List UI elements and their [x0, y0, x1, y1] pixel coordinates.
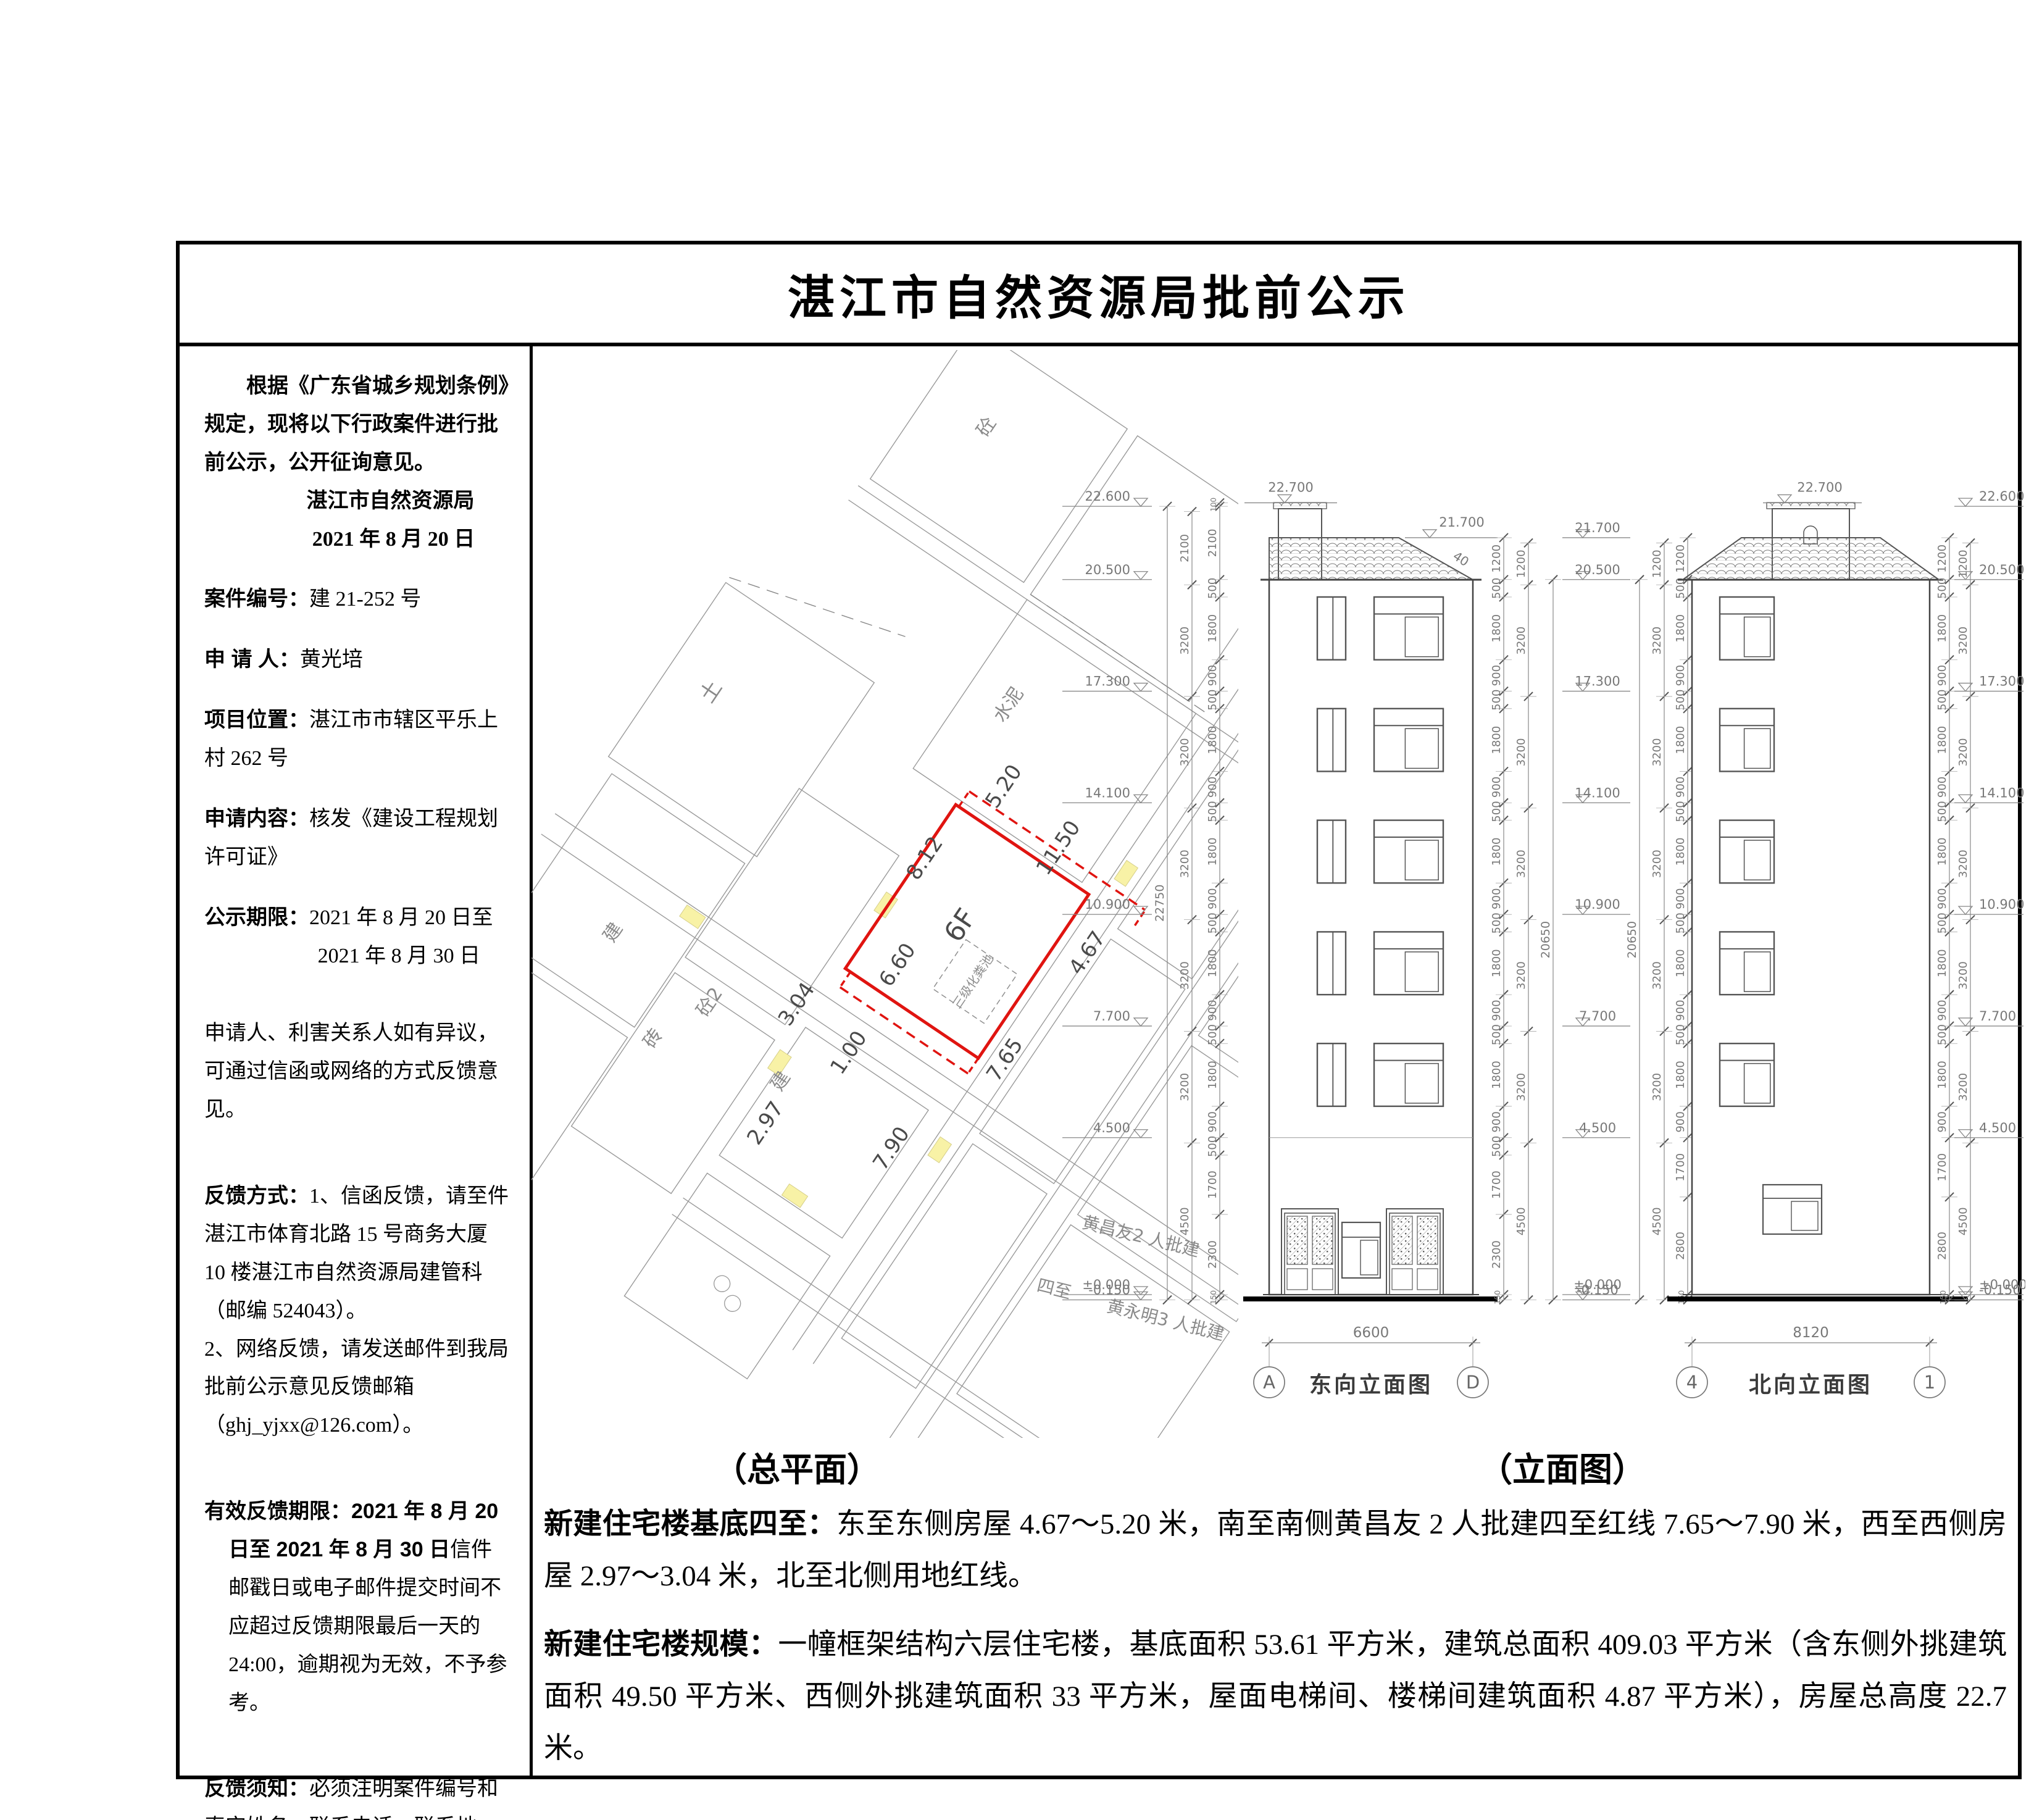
- svg-text:1800: 1800: [1490, 838, 1503, 866]
- svg-text:3200: 3200: [1515, 627, 1528, 655]
- svg-text:建: 建: [599, 919, 627, 946]
- svg-text:1800: 1800: [1206, 614, 1219, 643]
- svg-text:900: 900: [1936, 1000, 1949, 1021]
- svg-text:14.100: 14.100: [1085, 785, 1130, 800]
- svg-text:500: 500: [1674, 1024, 1687, 1045]
- svg-text:1200: 1200: [1674, 545, 1687, 573]
- svg-text:3.04: 3.04: [773, 978, 820, 1030]
- svg-text:17.300: 17.300: [1575, 674, 1620, 689]
- svg-text:20.500: 20.500: [1979, 562, 2024, 577]
- svg-text:17.300: 17.300: [1979, 674, 2024, 689]
- svg-text:1200: 1200: [1651, 549, 1664, 578]
- svg-text:21.700: 21.700: [1575, 520, 1620, 535]
- svg-text:4500: 4500: [1178, 1207, 1191, 1235]
- svg-text:500: 500: [1490, 912, 1503, 933]
- svg-text:2300: 2300: [1490, 1240, 1503, 1269]
- svg-text:500: 500: [1206, 1024, 1219, 1045]
- svg-text:500: 500: [1206, 912, 1219, 933]
- svg-text:砖: 砖: [639, 1025, 667, 1052]
- svg-text:北向立面图: 北向立面图: [1749, 1372, 1872, 1398]
- svg-text:3200: 3200: [1957, 961, 1970, 990]
- svg-text:900: 900: [1936, 888, 1949, 909]
- footer-p2-label: 新建住宅楼规模：: [544, 1627, 778, 1660]
- svg-text:3200: 3200: [1651, 627, 1664, 655]
- svg-text:500: 500: [1936, 912, 1949, 933]
- svg-text:900: 900: [1936, 1111, 1949, 1132]
- svg-text:1200: 1200: [1490, 545, 1503, 573]
- svg-text:东向立面图: 东向立面图: [1309, 1372, 1433, 1398]
- page-title: 湛江市自然资源局批前公示: [788, 260, 1410, 328]
- footer-notes: 新建住宅楼基底四至：东至东侧房屋 4.67～5.20 米，南至南侧黄昌友 2 人…: [544, 1498, 2007, 1790]
- svg-text:1800: 1800: [1206, 726, 1219, 754]
- svg-text:1700: 1700: [1490, 1171, 1503, 1199]
- svg-text:3200: 3200: [1957, 1073, 1970, 1101]
- svg-text:3200: 3200: [1651, 961, 1664, 990]
- svg-text:900: 900: [1490, 888, 1503, 909]
- svg-text:20.500: 20.500: [1575, 562, 1620, 577]
- svg-text:-0.150: -0.150: [1088, 1282, 1130, 1297]
- svg-text:500: 500: [1206, 801, 1219, 822]
- svg-text:40: 40: [1451, 548, 1472, 569]
- svg-text:3200: 3200: [1651, 1073, 1664, 1101]
- svg-text:500: 500: [1674, 912, 1687, 933]
- svg-text:1800: 1800: [1206, 949, 1219, 977]
- svg-text:1800: 1800: [1490, 1061, 1503, 1089]
- svg-text:20650: 20650: [1539, 921, 1552, 958]
- svg-text:1800: 1800: [1490, 614, 1503, 643]
- svg-text:4500: 4500: [1515, 1207, 1528, 1235]
- svg-text:20650: 20650: [1625, 921, 1639, 958]
- svg-text:900: 900: [1206, 777, 1219, 798]
- east-elevation: 2275045003200320032003200320021001502300…: [1062, 480, 1498, 1398]
- svg-text:21.700: 21.700: [1439, 515, 1484, 530]
- svg-text:4.500: 4.500: [1979, 1121, 2016, 1135]
- public-notice-sheet: 湛江市自然资源局批前公示 根据《广东省城乡规划条例》规定，现将以下行政案件进行批…: [0, 0, 2042, 1820]
- svg-text:10.900: 10.900: [1085, 897, 1130, 912]
- svg-text:3200: 3200: [1178, 738, 1191, 767]
- svg-text:22.600: 22.600: [1979, 489, 2024, 504]
- svg-text:2100: 2100: [1178, 534, 1191, 562]
- svg-text:1800: 1800: [1936, 838, 1949, 866]
- svg-text:1800: 1800: [1490, 949, 1503, 977]
- svg-text:900: 900: [1674, 1000, 1687, 1021]
- svg-text:14.100: 14.100: [1979, 785, 2024, 800]
- svg-text:14.100: 14.100: [1575, 785, 1620, 800]
- footer-paragraph-scale: 新建住宅楼规模：一幢框架结构六层住宅楼，基底面积 53.61 平方米，建筑总面积…: [544, 1618, 2007, 1774]
- svg-text:-0.150: -0.150: [1979, 1282, 2021, 1297]
- elevation-drawings: 2275045003200320032003200320021001502300…: [1004, 350, 2025, 1438]
- svg-text:1800: 1800: [1936, 949, 1949, 977]
- notice-frame: 湛江市自然资源局批前公示 根据《广东省城乡规划条例》规定，现将以下行政案件进行批…: [176, 241, 2022, 1779]
- svg-text:3200: 3200: [1515, 961, 1528, 990]
- svg-text:10.900: 10.900: [1979, 897, 2024, 912]
- footer-p1-label: 新建住宅楼基底四至：: [544, 1507, 836, 1540]
- svg-text:D: D: [1466, 1372, 1480, 1393]
- svg-text:500: 500: [1490, 578, 1503, 599]
- svg-text:900: 900: [1490, 777, 1503, 798]
- svg-text:6F: 6F: [938, 903, 983, 948]
- svg-text:4: 4: [1686, 1372, 1698, 1393]
- svg-text:3200: 3200: [1178, 627, 1191, 655]
- middle-dimensions: 1502300170050090018005009001800500900180…: [1490, 520, 1696, 1304]
- svg-text:3200: 3200: [1178, 961, 1191, 990]
- svg-text:500: 500: [1490, 1024, 1503, 1045]
- svg-text:1800: 1800: [1936, 726, 1949, 754]
- svg-text:土: 土: [695, 676, 727, 708]
- svg-text:500: 500: [1490, 1136, 1503, 1157]
- svg-text:10.900: 10.900: [1575, 897, 1620, 912]
- svg-text:500: 500: [1936, 1024, 1949, 1045]
- svg-text:7.700: 7.700: [1579, 1009, 1616, 1024]
- feedback-notes: 反馈须知：必须注明案件编号和真实姓名、联系电话、联系地址、邮政编码，如反馈信息不…: [204, 1770, 509, 1820]
- svg-text:建: 建: [767, 1067, 795, 1095]
- svg-text:4.500: 4.500: [1093, 1121, 1130, 1135]
- svg-text:3200: 3200: [1957, 849, 1970, 878]
- svg-text:A: A: [1263, 1372, 1275, 1393]
- footer-paragraph-boundaries: 新建住宅楼基底四至：东至东侧房屋 4.67～5.20 米，南至南侧黄昌友 2 人…: [544, 1498, 2007, 1602]
- svg-text:6.60: 6.60: [874, 938, 920, 991]
- svg-text:500: 500: [1674, 801, 1687, 822]
- svg-text:-0.150: -0.150: [1577, 1282, 1619, 1297]
- svg-text:500: 500: [1490, 690, 1503, 711]
- svg-text:900: 900: [1674, 665, 1687, 686]
- svg-text:900: 900: [1206, 665, 1219, 686]
- svg-text:8120: 8120: [1793, 1325, 1829, 1341]
- svg-text:4500: 4500: [1957, 1207, 1970, 1235]
- svg-text:4500: 4500: [1651, 1207, 1664, 1235]
- svg-text:3200: 3200: [1651, 849, 1664, 878]
- svg-text:22750: 22750: [1153, 885, 1167, 922]
- elevation-caption: （立面图）: [1433, 1442, 1692, 1491]
- svg-text:6600: 6600: [1353, 1325, 1390, 1341]
- svg-text:1800: 1800: [1206, 838, 1219, 866]
- svg-text:3200: 3200: [1178, 849, 1191, 878]
- svg-text:1200: 1200: [1515, 549, 1528, 578]
- svg-text:500: 500: [1674, 578, 1687, 599]
- svg-text:17.300: 17.300: [1085, 674, 1130, 689]
- svg-text:1200: 1200: [1936, 545, 1949, 573]
- svg-text:500: 500: [1206, 578, 1219, 599]
- svg-text:2.97: 2.97: [742, 1097, 788, 1150]
- svg-text:3200: 3200: [1178, 1073, 1191, 1101]
- svg-text:7.90: 7.90: [868, 1122, 914, 1175]
- svg-text:900: 900: [1674, 1111, 1687, 1132]
- svg-text:3200: 3200: [1957, 627, 1970, 655]
- svg-text:1800: 1800: [1490, 726, 1503, 754]
- svg-text:1800: 1800: [1674, 949, 1687, 977]
- svg-text:2800: 2800: [1674, 1232, 1687, 1260]
- svg-text:900: 900: [1674, 777, 1687, 798]
- svg-text:900: 900: [1490, 1111, 1503, 1132]
- svg-text:3200: 3200: [1957, 738, 1970, 767]
- site-plan-caption: （总平面）: [667, 1442, 927, 1491]
- svg-text:1800: 1800: [1674, 614, 1687, 643]
- svg-text:2800: 2800: [1936, 1232, 1949, 1260]
- svg-text:3200: 3200: [1515, 738, 1528, 767]
- svg-text:1200: 1200: [1957, 549, 1970, 578]
- svg-text:900: 900: [1936, 665, 1949, 686]
- svg-text:1800: 1800: [1936, 1061, 1949, 1089]
- svg-text:1700: 1700: [1206, 1171, 1219, 1199]
- svg-text:900: 900: [1206, 888, 1219, 909]
- svg-text:900: 900: [1490, 665, 1503, 686]
- title-bar: 湛江市自然资源局批前公示: [180, 244, 2018, 346]
- svg-text:3200: 3200: [1515, 849, 1528, 878]
- svg-text:500: 500: [1206, 1136, 1219, 1157]
- svg-text:1700: 1700: [1936, 1153, 1949, 1182]
- svg-text:500: 500: [1674, 690, 1687, 711]
- svg-text:500: 500: [1206, 690, 1219, 711]
- svg-text:1800: 1800: [1674, 726, 1687, 754]
- svg-text:900: 900: [1674, 888, 1687, 909]
- drawings-area: 5.2011.504.678.126F6.601.003.042.977.907…: [180, 346, 2018, 1776]
- svg-text:2100: 2100: [1206, 529, 1219, 557]
- svg-text:2300: 2300: [1206, 1240, 1219, 1269]
- svg-text:1800: 1800: [1674, 838, 1687, 866]
- svg-text:1800: 1800: [1206, 1061, 1219, 1089]
- svg-text:22.600: 22.600: [1085, 489, 1130, 504]
- svg-text:3200: 3200: [1515, 1073, 1528, 1101]
- notes-label: 反馈须知：: [204, 1777, 309, 1800]
- svg-text:22.700: 22.700: [1797, 480, 1842, 495]
- svg-text:500: 500: [1936, 690, 1949, 711]
- svg-text:1700: 1700: [1674, 1153, 1687, 1182]
- svg-text:1800: 1800: [1936, 614, 1949, 643]
- svg-text:100: 100: [1209, 498, 1218, 512]
- svg-text:砼: 砼: [972, 414, 1001, 441]
- svg-text:500: 500: [1490, 801, 1503, 822]
- svg-text:7.700: 7.700: [1093, 1009, 1130, 1024]
- svg-text:20.500: 20.500: [1085, 562, 1130, 577]
- svg-text:900: 900: [1490, 1000, 1503, 1021]
- svg-text:900: 900: [1206, 1111, 1219, 1132]
- svg-text:7.700: 7.700: [1979, 1009, 2016, 1024]
- svg-text:3200: 3200: [1651, 738, 1664, 767]
- svg-text:500: 500: [1936, 578, 1949, 599]
- svg-text:1: 1: [1924, 1372, 1935, 1393]
- svg-text:900: 900: [1206, 1000, 1219, 1021]
- svg-text:900: 900: [1936, 777, 1949, 798]
- svg-text:4.500: 4.500: [1579, 1121, 1616, 1135]
- svg-text:1800: 1800: [1674, 1061, 1687, 1089]
- svg-text:砼2: 砼2: [693, 983, 727, 1021]
- svg-text:500: 500: [1936, 801, 1949, 822]
- north-elevation: 22.7001502800170090018005009001800500900…: [1667, 480, 2025, 1398]
- svg-text:22.700: 22.700: [1268, 480, 1313, 495]
